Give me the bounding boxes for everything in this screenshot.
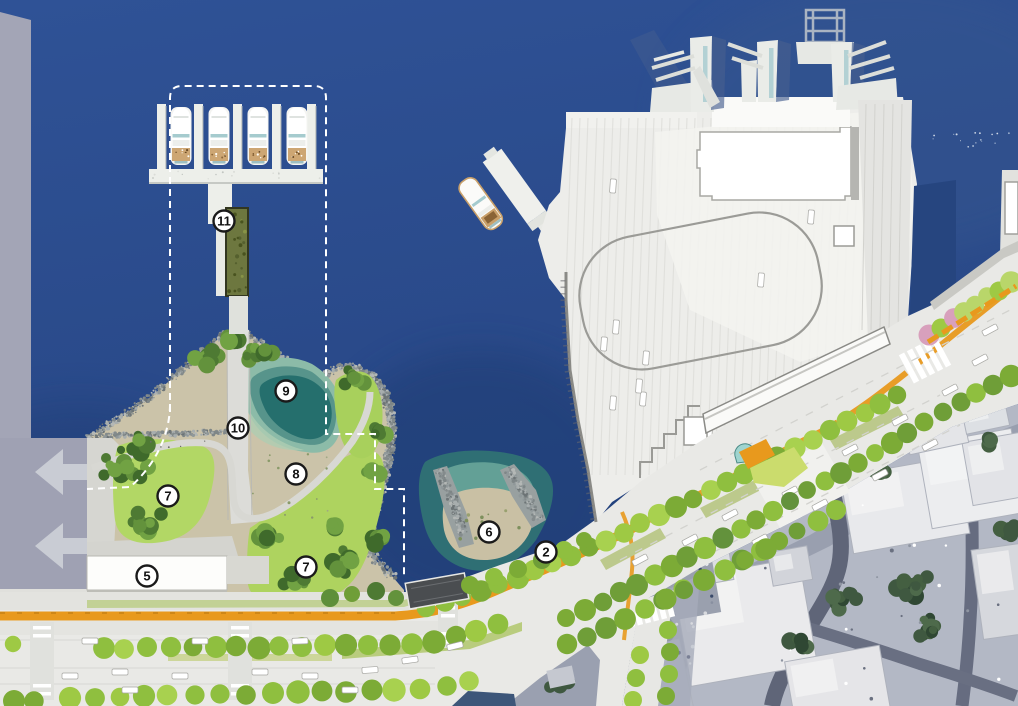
- svg-text:7: 7: [164, 489, 171, 504]
- svg-text:11: 11: [217, 214, 231, 229]
- svg-text:8: 8: [292, 467, 299, 482]
- svg-text:5: 5: [143, 569, 150, 584]
- svg-text:9: 9: [282, 384, 289, 399]
- svg-text:7: 7: [302, 560, 309, 575]
- svg-text:2: 2: [542, 545, 549, 560]
- svg-text:10: 10: [231, 421, 245, 436]
- svg-text:6: 6: [485, 525, 492, 540]
